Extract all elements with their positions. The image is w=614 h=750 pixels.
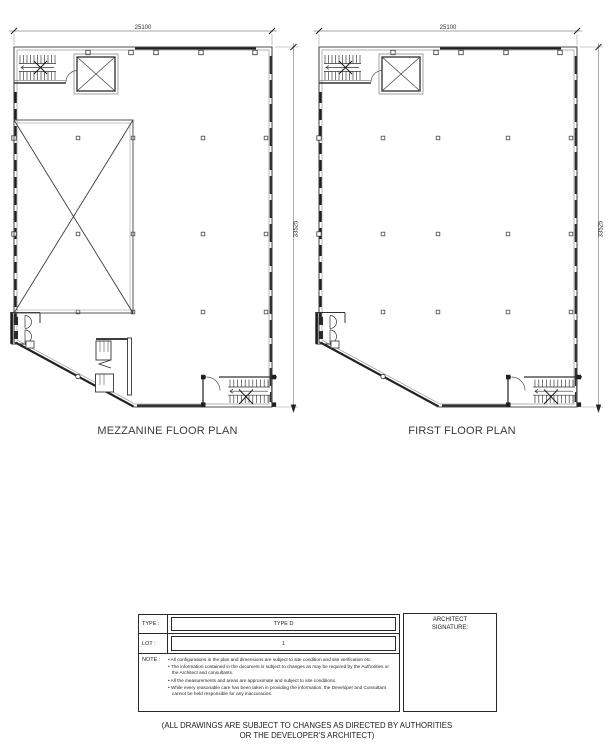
- note-list: • All configurations in the plan and dim…: [168, 657, 397, 698]
- first-floor-top-dimension: 25100: [440, 25, 457, 31]
- info-table: TYPE : TYPE D LOT : 1 NOTE : • All confi…: [138, 614, 400, 712]
- first-floor-plan-title: FIRST FLOOR PLAN: [350, 425, 574, 437]
- void-opening: [14, 120, 133, 313]
- first-floor-side-dimension: 33525: [599, 220, 605, 237]
- note-row: NOTE : • All configurations in the plan …: [139, 654, 399, 698]
- footer-disclaimer: (ALL DRAWINGS ARE SUBJECT TO CHANGES AS …: [0, 721, 614, 742]
- drawing-sheet: 25100 33525 25100 33525 MEZZANINE FLOOR …: [0, 0, 614, 750]
- disclaimer-line-1: (ALL DRAWINGS ARE SUBJECT TO CHANGES AS …: [0, 721, 614, 731]
- mezzanine-top-dimension: 25100: [135, 25, 152, 31]
- mezzanine-plan-title: MEZZANINE FLOOR PLAN: [40, 425, 295, 437]
- type-value: TYPE D: [171, 617, 396, 631]
- mezzanine-floor-plan: 25100 33525: [9, 25, 300, 413]
- mezzanine-mid-room: [96, 338, 132, 395]
- signature-label: SIGNATURE:: [404, 625, 496, 633]
- type-row: TYPE : TYPE D: [139, 615, 399, 634]
- architect-signature-box: ARCHITECT SIGNATURE:: [403, 613, 497, 712]
- floor-plans-drawing: 25100 33525 25100 33525: [0, 0, 614, 460]
- lot-label: LOT :: [139, 634, 168, 653]
- lot-value: 1: [171, 636, 396, 651]
- architect-label: ARCHITECT: [404, 617, 496, 625]
- first-floor-plan: 25100 33525: [314, 25, 605, 413]
- note-label: NOTE :: [142, 657, 168, 698]
- mezzanine-side-dimension: 33525: [294, 220, 300, 237]
- type-label: TYPE :: [139, 615, 168, 633]
- lot-row: LOT : 1: [139, 634, 399, 654]
- disclaimer-line-2: OR THE DEVELOPER'S ARCHITECT): [0, 731, 614, 741]
